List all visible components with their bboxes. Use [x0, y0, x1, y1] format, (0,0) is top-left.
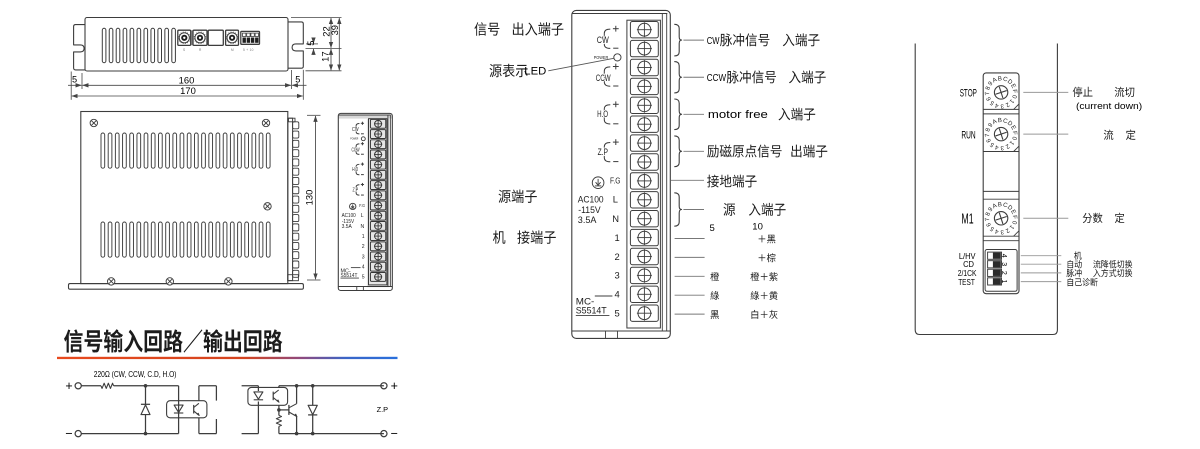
svg-text:M: M: [231, 48, 234, 52]
svg-text:2: 2: [362, 244, 365, 250]
svg-text:F.G: F.G: [359, 203, 365, 208]
svg-text:1: 1: [615, 232, 620, 243]
svg-text:10: 10: [752, 222, 763, 233]
svg-text:5 + 10: 5 + 10: [243, 48, 254, 52]
svg-text:H.O: H.O: [352, 167, 358, 173]
svg-text:AC100: AC100: [342, 213, 356, 219]
svg-text:2: 2: [615, 251, 620, 262]
svg-text:CCW: CCW: [707, 72, 726, 84]
svg-text:S: S: [183, 48, 185, 52]
svg-text:−: −: [391, 427, 398, 441]
svg-text:CD: CD: [963, 260, 974, 269]
svg-text:STOP: STOP: [960, 88, 977, 100]
svg-text:3: 3: [1000, 262, 1007, 266]
svg-text:Z.P: Z.P: [377, 405, 389, 414]
svg-text:5: 5: [362, 275, 365, 281]
svg-text:130: 130: [304, 190, 315, 206]
svg-text:4: 4: [362, 265, 365, 271]
svg-text:1: 1: [1000, 279, 1007, 283]
svg-text:3.5A: 3.5A: [578, 214, 597, 225]
svg-text:F: F: [1011, 215, 1018, 220]
svg-text:LED: LED: [524, 66, 546, 78]
svg-text:F: F: [1011, 131, 1018, 136]
svg-text:Z.P: Z.P: [352, 187, 358, 193]
svg-text:5: 5: [710, 223, 715, 234]
svg-text:F: F: [1011, 89, 1018, 94]
svg-text:4: 4: [615, 289, 620, 300]
svg-text:4: 4: [1000, 254, 1007, 258]
svg-text:CW: CW: [352, 127, 359, 133]
svg-text:5: 5: [295, 75, 300, 85]
svg-text:−: −: [65, 427, 72, 441]
svg-text:160: 160: [179, 74, 195, 85]
svg-text:AC100: AC100: [578, 194, 604, 205]
svg-text:2/1CK: 2/1CK: [958, 269, 977, 278]
svg-text:L: L: [361, 213, 364, 219]
svg-text:17: 17: [320, 51, 331, 61]
svg-text:5: 5: [72, 75, 77, 85]
svg-text:3: 3: [615, 270, 620, 281]
svg-text:motor free: motor free: [708, 109, 768, 121]
svg-text:RUN: RUN: [961, 129, 975, 141]
svg-text:L: L: [613, 194, 618, 205]
svg-text:(current down): (current down): [1076, 101, 1142, 112]
svg-text:CCW: CCW: [596, 72, 611, 83]
svg-text:S5514T: S5514T: [576, 305, 607, 316]
svg-text:R: R: [199, 48, 202, 52]
svg-text:3.5A: 3.5A: [342, 224, 353, 230]
svg-text:220Ω (CW, CCW, C.D, H.O): 220Ω (CW, CCW, C.D, H.O): [94, 370, 177, 379]
svg-text:TEST: TEST: [958, 278, 975, 287]
svg-text:5: 5: [306, 41, 316, 46]
svg-text:CW: CW: [597, 34, 609, 45]
svg-text:+: +: [391, 379, 398, 393]
svg-text:39: 39: [329, 25, 340, 35]
svg-text:Z.P: Z.P: [598, 146, 608, 157]
svg-text:2: 2: [1000, 271, 1007, 275]
svg-text:5: 5: [615, 308, 620, 319]
svg-text:3: 3: [362, 254, 365, 260]
svg-text:F.G: F.G: [610, 176, 620, 186]
svg-text:N: N: [612, 213, 619, 224]
svg-text:H.O: H.O: [597, 108, 608, 119]
svg-text:N: N: [360, 224, 364, 230]
svg-text:170: 170: [180, 85, 196, 96]
svg-text:+: +: [65, 379, 72, 393]
svg-text:1: 1: [362, 234, 365, 240]
svg-text:CCW: CCW: [351, 147, 359, 153]
svg-text:CW: CW: [707, 35, 720, 47]
svg-text:POWER: POWER: [350, 138, 358, 141]
svg-text:M1: M1: [961, 212, 973, 228]
